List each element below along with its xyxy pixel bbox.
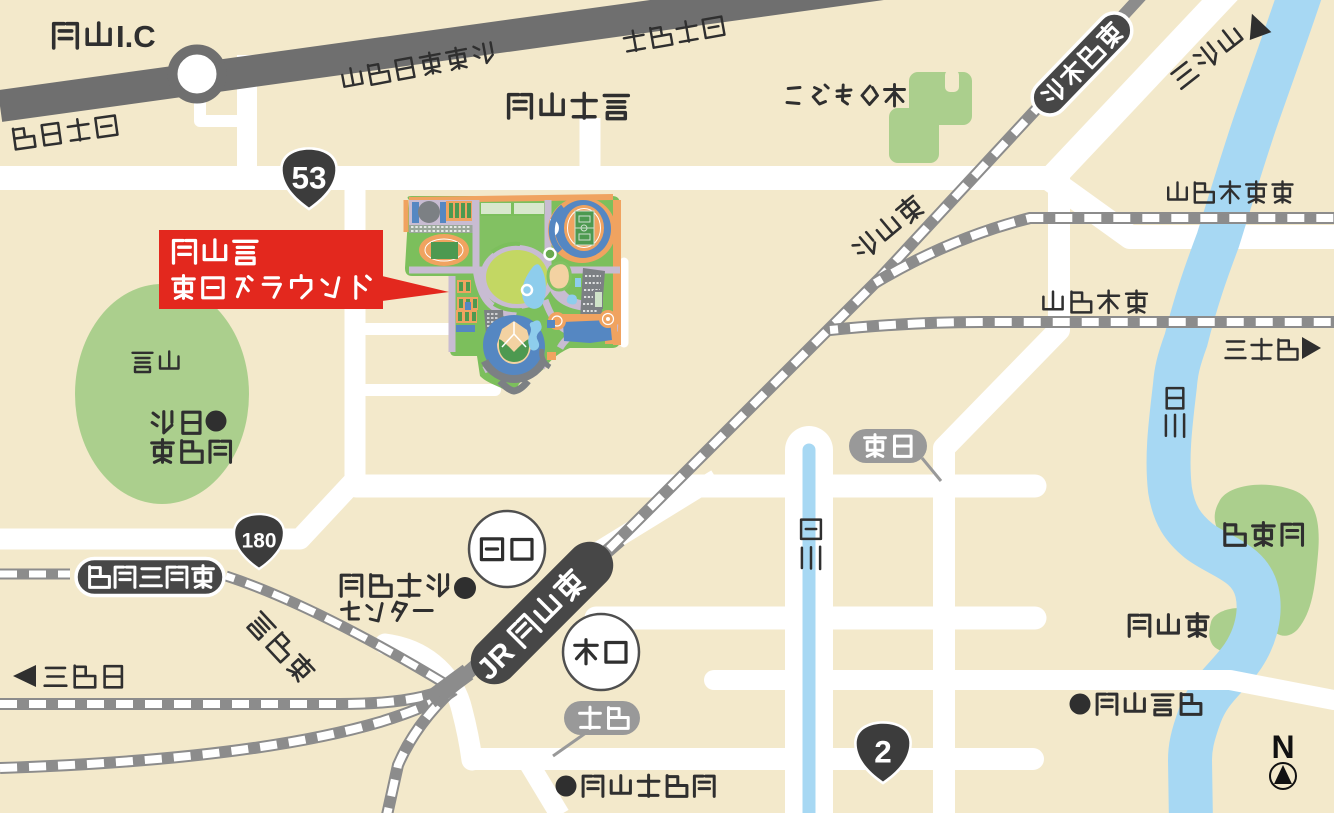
svg-text:2: 2 (874, 733, 892, 769)
svg-text:I.C: I.C (116, 19, 156, 54)
svg-text:N: N (1271, 729, 1294, 765)
svg-text:180: 180 (242, 530, 277, 553)
svg-text:53: 53 (291, 159, 326, 195)
